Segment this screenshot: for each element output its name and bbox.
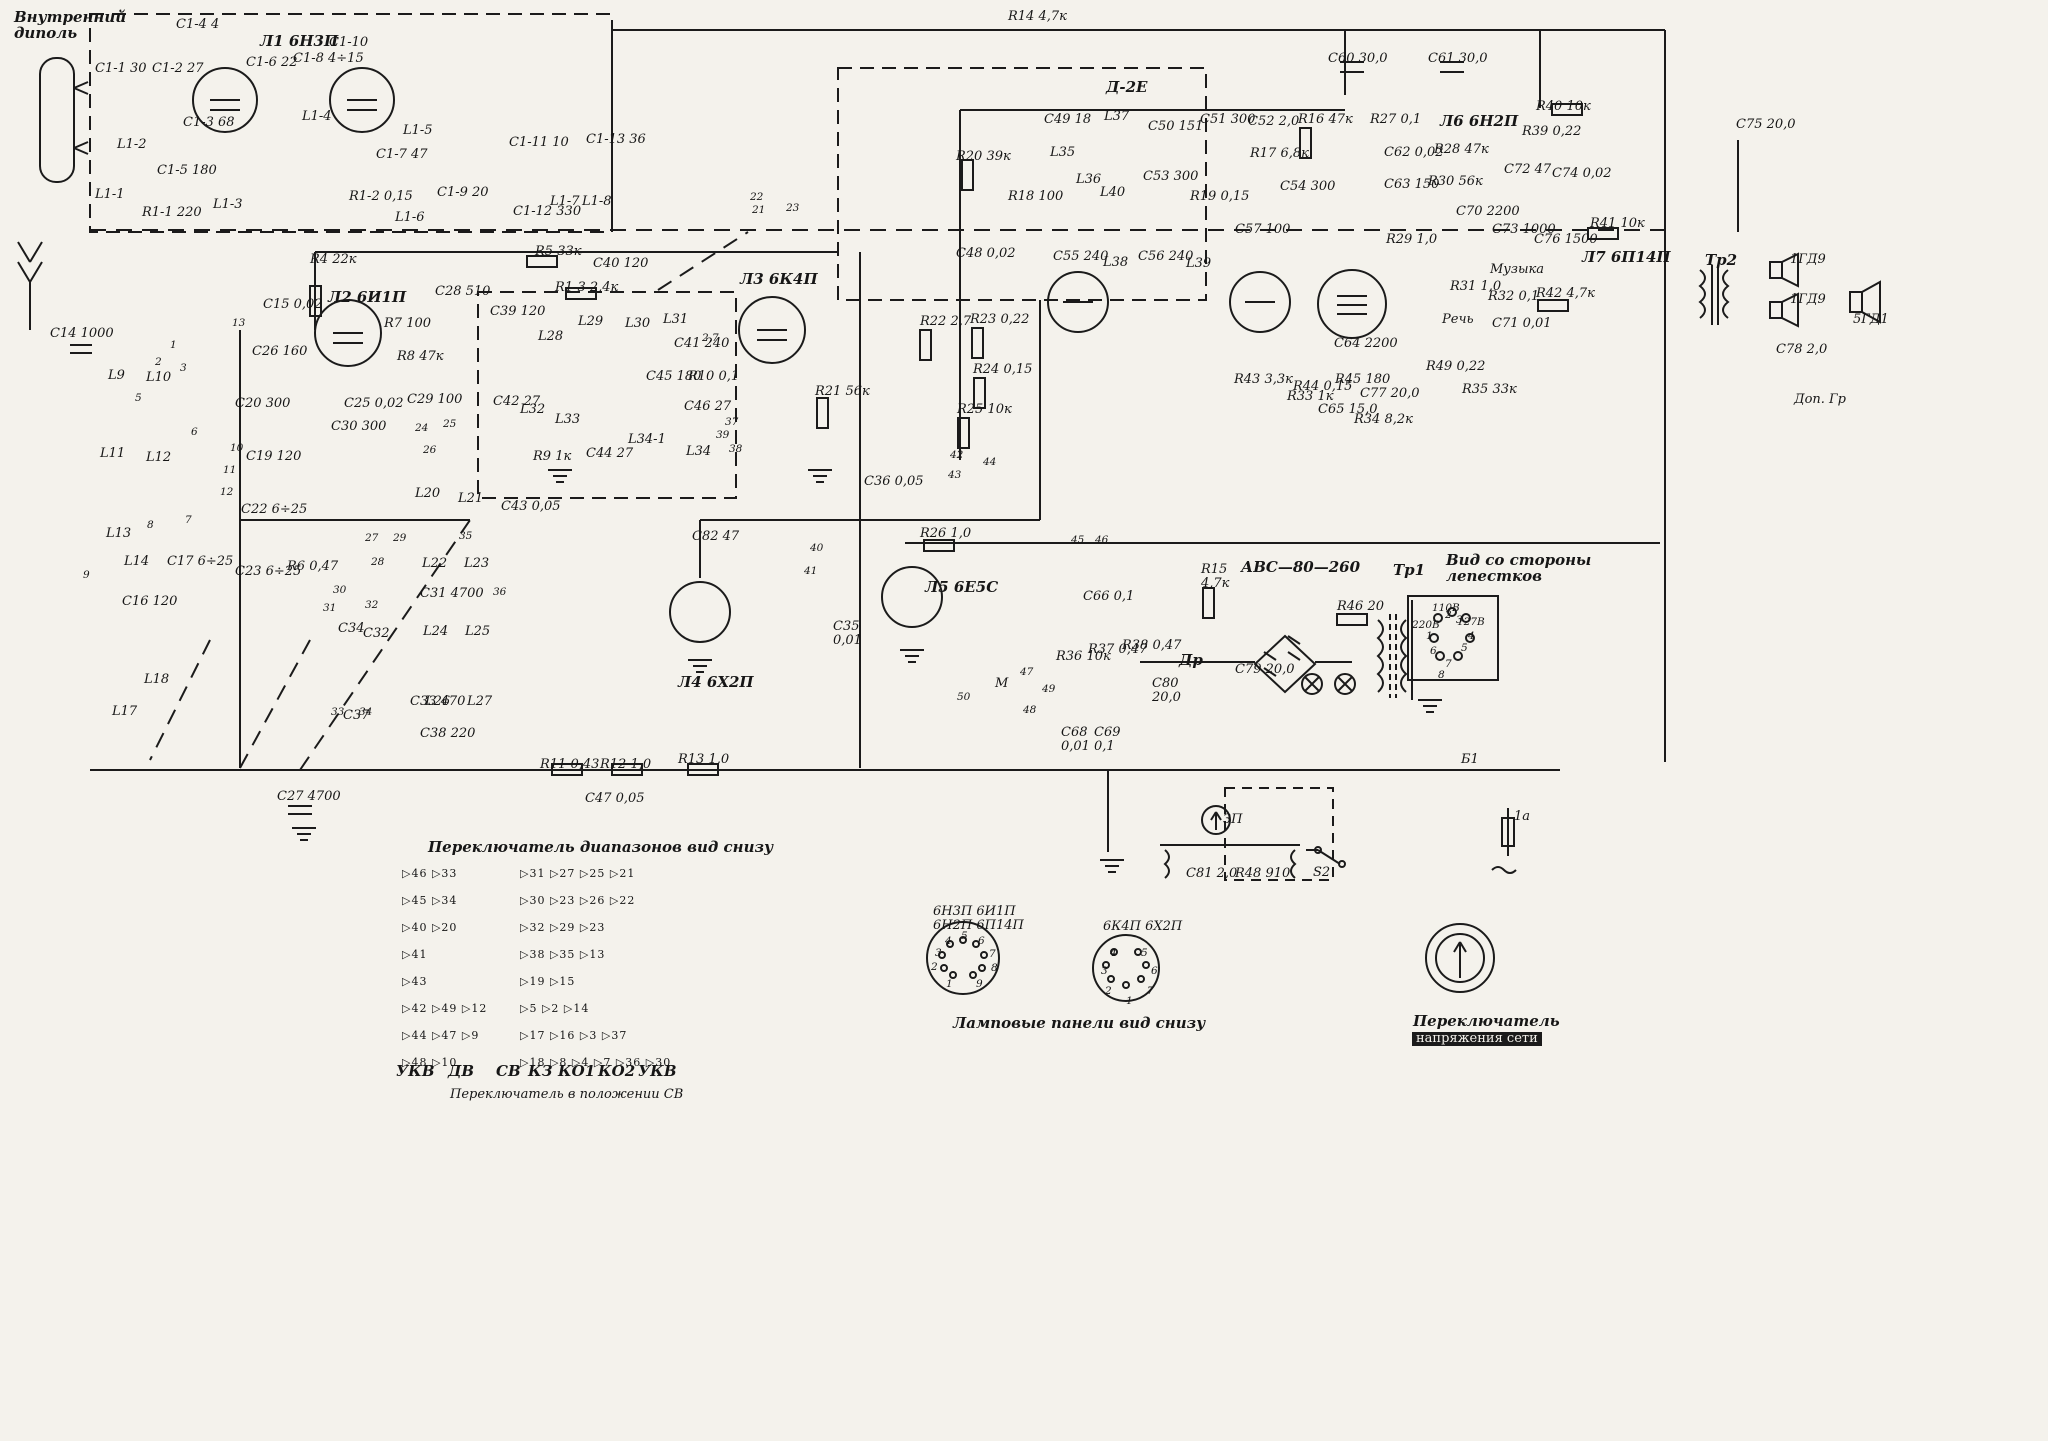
label-97: R7 100 — [384, 317, 431, 331]
label-270: 4 — [945, 936, 952, 947]
label-142: С32 — [363, 627, 390, 641]
label-146: С27 4700 — [277, 790, 341, 804]
label-50: С55 240 — [1053, 250, 1108, 264]
label-28: 23 — [786, 203, 799, 214]
label-100: С20 300 — [235, 397, 290, 411]
label-123: 3 — [180, 363, 187, 374]
label-c1-2: С1-2 27 — [152, 62, 204, 76]
label-207: 48 — [1023, 705, 1036, 716]
label-254: ▷19 ▷15 — [520, 976, 575, 988]
label-c60: С60 30,0 — [1328, 52, 1388, 66]
label-151: 24 — [415, 423, 428, 434]
label-198: 43 — [948, 470, 961, 481]
label-155: 29 — [393, 533, 406, 544]
label-271: 6 — [978, 936, 985, 947]
label-band-sv: СВ — [496, 1064, 521, 1080]
label-139: L27 — [467, 695, 492, 709]
label-239: С81 2,0 — [1186, 867, 1237, 881]
label-25: R1-3 2,4к — [555, 281, 618, 295]
label-273: 7 — [989, 949, 996, 960]
label-48: R19 0,15 — [1190, 190, 1249, 204]
label-214: С68 0,01 — [1061, 726, 1090, 753]
label-148: R12 1,0 — [600, 758, 651, 772]
label-55: С48 0,02 — [956, 247, 1016, 261]
label-c1-3: С1-3 68 — [183, 116, 235, 130]
label-125: 6 — [191, 427, 198, 438]
label-178: С46 27 — [684, 400, 731, 414]
label-124: 5 — [135, 393, 142, 404]
label-114: L17 — [112, 705, 137, 719]
label-278: 1 — [1126, 996, 1133, 1007]
label-172: С44 27 — [586, 447, 633, 461]
label-86: С77 20,0 — [1360, 387, 1420, 401]
label-caption-sockets: Ламповые панели вид снизу — [953, 1016, 1205, 1032]
label-ext-speaker: Доп. Гр — [1794, 393, 1846, 407]
label-12: R1-1 220 — [142, 206, 202, 220]
label-163: 36 — [493, 587, 506, 598]
label-216: С80 20,0 — [1152, 677, 1181, 704]
label-145: С38 220 — [420, 727, 475, 741]
label-51: L38 — [1103, 256, 1128, 270]
label-157: 30 — [333, 585, 346, 596]
label-20: С1-11 10 — [509, 136, 569, 150]
label-209: М — [995, 677, 1008, 691]
label-47: L40 — [1100, 186, 1125, 200]
label-r40: R40 10к — [1536, 100, 1591, 114]
label-detector-name: Д-2Е — [1106, 80, 1147, 96]
label-10: L1-1 — [95, 188, 125, 202]
label-tube-l3: Л3 6К4П — [740, 272, 818, 288]
label-281: 3 — [1101, 966, 1108, 977]
label-24: С1-12 330 — [513, 205, 581, 219]
label-speaker3: 5ГД1 — [1853, 313, 1889, 327]
label-243: ▷45 ▷34 — [402, 895, 457, 907]
label-132: L20 — [415, 487, 440, 501]
label-195: 41 — [804, 566, 817, 577]
label-69: С76 1500 — [1534, 233, 1598, 247]
label-music: Музыка — [1490, 263, 1544, 277]
label-caption-voltage-1: Переключатель — [1413, 1014, 1560, 1030]
label-153: 26 — [423, 445, 436, 456]
label-131: 12 — [220, 487, 233, 498]
label-255: ▷5 ▷2 ▷14 — [520, 1003, 589, 1015]
label-44: С53 300 — [1143, 170, 1198, 184]
label-band-ko2: КО2 — [598, 1064, 635, 1080]
label-192: R24 0,15 — [973, 363, 1032, 377]
label-43: L36 — [1076, 173, 1101, 187]
label-c1-6: С1-6 22 — [246, 56, 298, 70]
label-109: L12 — [146, 451, 171, 465]
label-274: 2 — [931, 962, 938, 973]
label-11: С1-5 180 — [157, 164, 217, 178]
label-283: 4 — [1110, 948, 1117, 959]
label-240: R48 910 — [1235, 867, 1290, 881]
schematic-labels: Внутренний дипольС1-1 30С1-2 27С1-4 4С1-… — [0, 0, 2048, 1441]
label-169: L33 — [555, 413, 580, 427]
label-231: 5 — [1461, 643, 1468, 654]
label-65: С70 2200 — [1456, 205, 1520, 219]
label-74: R32 0,1 — [1488, 290, 1539, 304]
label-202: R26 1,0 — [920, 527, 971, 541]
label-181: С43 0,05 — [501, 500, 561, 514]
label-socket-caption-2: 6К4П 6Х2П — [1103, 920, 1182, 934]
label-193: R25 10к — [957, 403, 1012, 417]
label-16: С1-7 47 — [376, 148, 428, 162]
label-98: R8 47к — [397, 350, 444, 364]
label-38: L37 — [1104, 110, 1129, 124]
label-280: 7 — [1147, 986, 1154, 997]
label-272: 3 — [935, 948, 942, 959]
label-101: С26 160 — [252, 345, 307, 359]
label-c75: С75 20,0 — [1736, 118, 1796, 132]
label-134: L22 — [422, 557, 447, 571]
label-110: L13 — [106, 527, 131, 541]
label-speaker2: 1ГД9 — [1790, 293, 1826, 307]
label-26: 22 — [750, 192, 763, 203]
label-41: С52 2,0 — [1248, 115, 1299, 129]
label-154: 27 — [365, 533, 378, 544]
label-78: R35 33к — [1462, 383, 1517, 397]
label-251: ▷30 ▷23 ▷26 ▷22 — [520, 895, 635, 907]
label-46: R18 100 — [1008, 190, 1063, 204]
label-250: ▷31 ▷27 ▷25 ▷21 — [520, 868, 635, 880]
label-247: ▷42 ▷49 ▷12 — [402, 1003, 487, 1015]
label-104: С29 100 — [407, 393, 462, 407]
label-68: R41 10к — [1590, 217, 1645, 231]
label-socket-caption-1: 6Н3П 6И1П 6Н2П 6П14П — [933, 905, 1024, 932]
label-183: 38 — [729, 444, 742, 455]
label-159: 31 — [323, 603, 336, 614]
label-107: L10 — [146, 371, 171, 385]
label-204: 46 — [1095, 535, 1108, 546]
label-282: 6 — [1151, 966, 1158, 977]
label-14: L1-4 — [302, 110, 332, 124]
label-252: ▷32 ▷29 ▷23 — [520, 922, 605, 934]
label-27: 21 — [752, 205, 765, 216]
label-23: L1-8 — [582, 195, 612, 209]
label-tube-l5: Л5 6Е5С — [925, 580, 998, 596]
label-119: R6 0,47 — [287, 560, 338, 574]
label-196: 42 — [950, 450, 963, 461]
label-108: L11 — [100, 447, 125, 461]
label-15: L1-5 — [403, 124, 433, 138]
label-caption-dipole: Внутренний диполь — [14, 10, 126, 42]
label-77: R49 0,22 — [1426, 360, 1485, 374]
label-206: 49 — [1042, 684, 1055, 695]
label-189: R21 56к — [815, 385, 870, 399]
label-speech: Речь — [1442, 313, 1474, 327]
schematic-page: Внутренний дипольС1-1 30С1-2 27С1-4 4С1-… — [0, 0, 2048, 1441]
label-277: 9 — [976, 979, 983, 990]
label-179: L34-1 — [628, 433, 666, 447]
label-253: ▷38 ▷35 ▷13 — [520, 949, 605, 961]
label-242: ▷46 ▷33 — [402, 868, 457, 880]
label-99: С28 510 — [435, 285, 490, 299]
label-caption-sw-pos: Переключатель в положении СВ — [450, 1088, 683, 1102]
label-188: С82 47 — [692, 530, 739, 544]
label-222: С79 20,0 — [1235, 663, 1295, 677]
label-75: С71 0,01 — [1492, 317, 1552, 331]
label-18: L1-6 — [395, 211, 425, 225]
label-133: L21 — [458, 492, 483, 506]
label-13: L1-3 — [213, 198, 243, 212]
label-45: R17 6,8к — [1250, 147, 1309, 161]
label-229: 3 — [1456, 615, 1463, 626]
label-103: С30 300 — [331, 420, 386, 434]
label-c1-1: С1-1 30 — [95, 62, 147, 76]
label-135: L23 — [464, 557, 489, 571]
label-167: L29 — [578, 315, 603, 329]
label-203: 45 — [1071, 535, 1084, 546]
label-246: ▷43 — [402, 976, 427, 988]
label-54: С57 100 — [1235, 223, 1290, 237]
label-r14: R14 4,7к — [1008, 10, 1067, 24]
label-caption-band-switch: Переключатель диапазонов вид снизу — [428, 840, 773, 856]
label-105: С14 1000 — [50, 327, 114, 341]
label-56: R27 0,1 — [1370, 113, 1421, 127]
label-245: ▷41 — [402, 949, 427, 961]
label-244: ▷40 ▷20 — [402, 922, 457, 934]
label-115: С17 6÷25 — [167, 555, 233, 569]
label-220: R46 20 — [1337, 600, 1384, 614]
label-279: 2 — [1105, 986, 1112, 997]
label-137: L25 — [465, 625, 490, 639]
label-177: R10 0,1 — [688, 370, 739, 384]
label-c1-8: С1-8 4÷15 — [293, 52, 364, 66]
label-160: 33 — [331, 707, 344, 718]
label-tube-l6: Л6 6Н2П — [1440, 114, 1518, 130]
label-248: ▷44 ▷47 ▷9 — [402, 1030, 479, 1042]
label-190: R22 2,7 — [920, 315, 971, 329]
label-caption-voltage-2: напряжения сети — [1412, 1032, 1542, 1046]
label-186: 2,7 — [702, 333, 719, 344]
label-106: L9 — [108, 369, 125, 383]
label-149: R13 1,0 — [678, 753, 729, 767]
label-174: L31 — [663, 313, 688, 327]
label-rectifier: АВС—80—260 — [1241, 560, 1360, 576]
label-band-ukv2: УКВ — [638, 1064, 677, 1080]
label-162: 35 — [459, 531, 472, 542]
label-166: L28 — [538, 330, 563, 344]
label-c61: С61 30,0 — [1428, 52, 1488, 66]
label-95: С15 0,02 — [263, 298, 323, 312]
label-17: R1-2 0,15 — [349, 190, 413, 204]
label-band-ko1: КО1 — [558, 1064, 595, 1080]
label-161: 34 — [359, 707, 372, 718]
label-r20: R20 39к — [956, 150, 1011, 164]
label-speaker1: 1ГД9 — [1790, 253, 1826, 267]
label-111: L14 — [124, 555, 149, 569]
label-112: С16 120 — [122, 595, 177, 609]
label-122: 2 — [155, 357, 162, 368]
label-tr2: Тр2 — [1705, 253, 1737, 269]
label-152: 25 — [443, 419, 456, 430]
label-60: R39 0,22 — [1522, 125, 1581, 139]
label-36: С49 18 — [1044, 113, 1091, 127]
label-227: 1 — [1426, 631, 1433, 642]
label-234: 8 — [1438, 670, 1445, 681]
label-213: R38 0,47 — [1122, 639, 1181, 653]
label-94: R4 22к — [310, 253, 357, 267]
label-129: 10 — [230, 443, 243, 454]
label-42: R16 47к — [1298, 113, 1353, 127]
label-130: 11 — [223, 465, 236, 476]
label-232: 6 — [1430, 646, 1437, 657]
label-180: L34 — [686, 445, 711, 459]
label-156: 28 — [371, 557, 384, 568]
label-170: С42 27 — [493, 395, 540, 409]
label-284: 5 — [1141, 948, 1148, 959]
label-76: R42 4,7к — [1536, 287, 1595, 301]
label-228: 2 — [1445, 610, 1452, 621]
label-62: С74 0,02 — [1552, 167, 1612, 181]
label-113: L18 — [144, 673, 169, 687]
label-21: С1-13 36 — [586, 133, 646, 147]
label-210: С66 0,1 — [1083, 590, 1134, 604]
label-126: 7 — [185, 515, 192, 526]
label-143: С33 470 — [410, 695, 465, 709]
label-199: С36 0,05 — [864, 475, 924, 489]
label-64: R30 56к — [1428, 175, 1483, 189]
label-19: С1-9 20 — [437, 186, 489, 200]
label-59: R28 47к — [1434, 143, 1489, 157]
label-171: R9 1к — [533, 450, 571, 464]
label-b1: Б1 — [1461, 753, 1479, 767]
label-182: 37 — [725, 417, 738, 428]
label-173: L30 — [625, 317, 650, 331]
label-233: 7 — [1445, 659, 1452, 670]
label-caption-lugs: Вид со стороны лепестков — [1446, 553, 1591, 585]
label-83: R43 3,3к — [1234, 373, 1293, 387]
label-147: R11 0,43 — [540, 758, 599, 772]
label-91: С78 2,0 — [1776, 343, 1827, 357]
label-197: 44 — [983, 457, 996, 468]
label-150: С47 0,05 — [585, 792, 645, 806]
label-256: ▷17 ▷16 ▷3 ▷37 — [520, 1030, 627, 1042]
label-158: 32 — [365, 600, 378, 611]
label-164: С39 120 — [490, 305, 545, 319]
label-tube-l1: Л1 6Н3П — [260, 34, 338, 50]
label-218: R15 4,7к — [1201, 563, 1229, 590]
label-37: L35 — [1050, 146, 1075, 160]
label-230: 4 — [1468, 631, 1475, 642]
label-200: С35 0,01 — [833, 620, 862, 647]
label-215: С69 0,1 — [1094, 726, 1121, 753]
label-140: С31 4700 — [420, 587, 484, 601]
label-band-ukv1: УКВ — [396, 1064, 435, 1080]
label-120: 13 — [232, 318, 245, 329]
label-c1-4: С1-4 4 — [176, 18, 219, 32]
label-121: 1 — [170, 340, 177, 351]
label-79: С64 2200 — [1334, 337, 1398, 351]
label-117: С19 120 — [246, 450, 301, 464]
label-194: 40 — [810, 543, 823, 554]
label-fuse: 1а — [1514, 810, 1530, 824]
label-276: 1 — [946, 979, 953, 990]
label-66: R29 1,0 — [1386, 233, 1437, 247]
label-49: С54 300 — [1280, 180, 1335, 194]
label-184: 39 — [716, 430, 729, 441]
label-choke: Др — [1179, 653, 1203, 669]
label-band-dv: ДВ — [448, 1064, 474, 1080]
label-191: R23 0,22 — [970, 313, 1029, 327]
label-pickup: ЗП — [1223, 813, 1242, 827]
label-118: С22 6÷25 — [241, 503, 307, 517]
label-c1-10: С1-10 — [329, 36, 368, 50]
label-tube-l4: Л4 6Х2П — [678, 675, 754, 691]
label-136: L24 — [423, 625, 448, 639]
label-127: 8 — [147, 520, 154, 531]
label-93: R5 33к — [535, 245, 582, 259]
label-82: R34 8,2к — [1354, 413, 1413, 427]
label-9: L1-2 — [117, 138, 147, 152]
label-141: С34 — [338, 622, 365, 636]
label-102: С25 0,02 — [344, 397, 404, 411]
label-s2: S2 — [1313, 866, 1330, 880]
label-61: С72 47 — [1504, 163, 1551, 177]
label-165: С40 120 — [593, 257, 648, 271]
label-85: R45 180 — [1335, 373, 1390, 387]
label-tr1: Тр1 — [1393, 563, 1425, 579]
label-128: 9 — [83, 570, 90, 581]
label-275: 8 — [991, 963, 998, 974]
label-band-kz: КЗ — [528, 1064, 552, 1080]
label-39: С50 151 — [1148, 120, 1203, 134]
label-205: 47 — [1020, 667, 1033, 678]
label-208: 50 — [957, 692, 970, 703]
label-tube-l7: Л7 6П14П — [1582, 250, 1671, 266]
label-tube-l2: Л2 6И1П — [328, 290, 406, 306]
label-269: 5 — [961, 931, 968, 942]
label-53: L39 — [1186, 257, 1211, 271]
